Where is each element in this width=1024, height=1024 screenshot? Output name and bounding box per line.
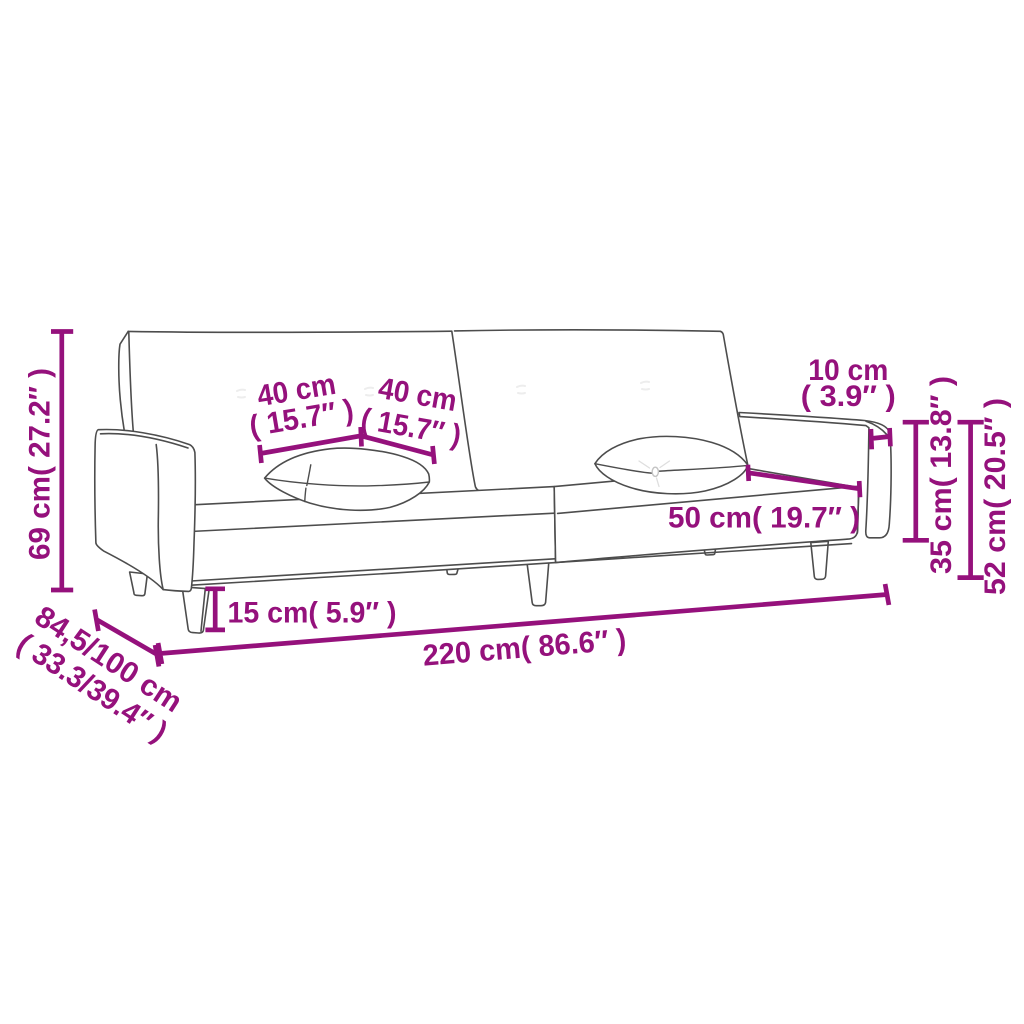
svg-text:15 cm( 5.9″ ): 15 cm( 5.9″ ) [228, 597, 397, 630]
svg-text:( 3.9″ ): ( 3.9″ ) [801, 380, 896, 413]
svg-text:52 cm( 20.5″ ): 52 cm( 20.5″ ) [979, 398, 1012, 595]
svg-text:69 cm( 27.2″ ): 69 cm( 27.2″ ) [24, 368, 57, 560]
svg-text:35 cm( 13.8″ ): 35 cm( 13.8″ ) [925, 376, 958, 574]
svg-text:50 cm( 19.7″ ): 50 cm( 19.7″ ) [668, 502, 860, 535]
